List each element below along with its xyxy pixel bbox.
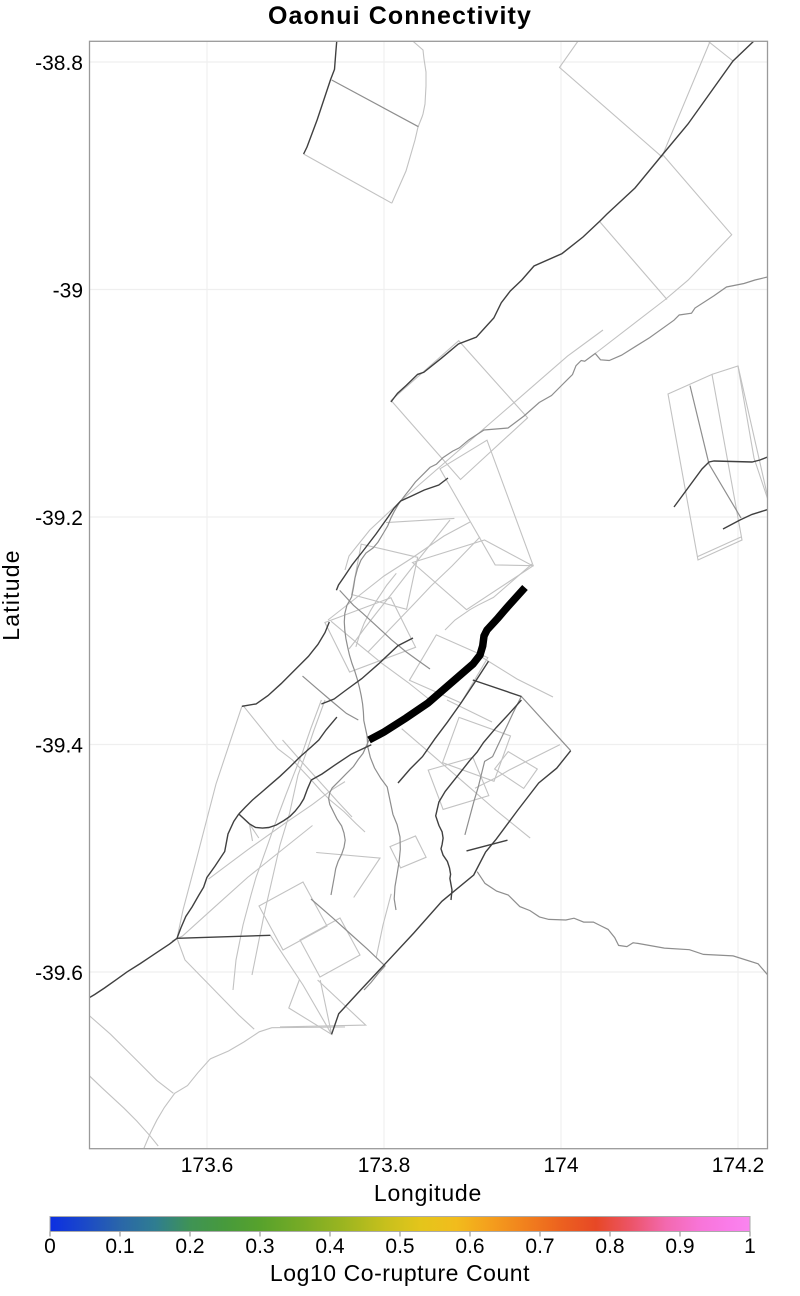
svg-text:0: 0 <box>44 1235 56 1258</box>
svg-text:0.6: 0.6 <box>455 1235 484 1258</box>
svg-text:-39.2: -39.2 <box>35 507 83 530</box>
svg-text:173.6: 173.6 <box>181 1154 234 1177</box>
svg-text:0.2: 0.2 <box>175 1235 204 1258</box>
svg-text:0.8: 0.8 <box>595 1235 624 1258</box>
svg-text:174.2: 174.2 <box>712 1154 765 1177</box>
svg-text:-38.8: -38.8 <box>35 52 83 75</box>
svg-text:0.4: 0.4 <box>315 1235 345 1258</box>
svg-text:Latitude: Latitude <box>0 549 24 640</box>
svg-text:-39: -39 <box>53 280 83 303</box>
svg-text:0.9: 0.9 <box>665 1235 694 1258</box>
svg-text:0.3: 0.3 <box>245 1235 274 1258</box>
svg-text:Oaonui Connectivity: Oaonui Connectivity <box>268 2 532 30</box>
svg-text:0.7: 0.7 <box>525 1235 554 1258</box>
svg-text:1: 1 <box>744 1235 756 1258</box>
svg-text:Log10 Co-rupture Count: Log10 Co-rupture Count <box>270 1260 530 1286</box>
svg-text:0.5: 0.5 <box>385 1235 414 1258</box>
svg-text:174: 174 <box>543 1154 578 1177</box>
svg-text:173.8: 173.8 <box>358 1154 411 1177</box>
svg-text:Longitude: Longitude <box>374 1180 482 1206</box>
svg-text:-39.4: -39.4 <box>35 735 83 758</box>
svg-text:-39.6: -39.6 <box>35 962 83 985</box>
svg-text:0.1: 0.1 <box>105 1235 134 1258</box>
